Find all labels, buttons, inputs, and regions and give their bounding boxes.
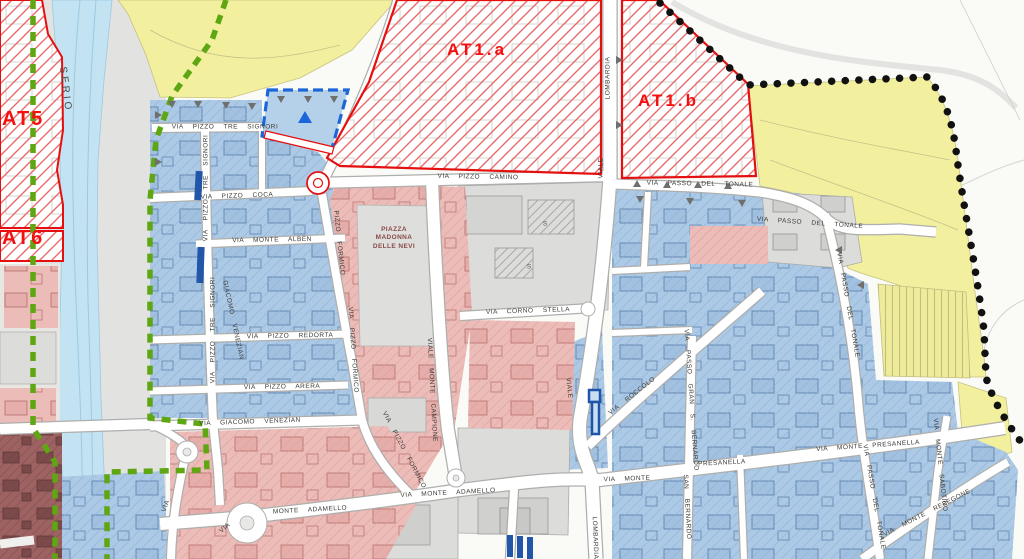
zoning-plan-map: AT5 AT6 AT1.a AT1.b SERIO PIAZZA MADONNA… bbox=[0, 0, 1024, 559]
map-canvas bbox=[0, 0, 1024, 559]
piazza-madonna-delle-nevi-area bbox=[357, 205, 436, 346]
